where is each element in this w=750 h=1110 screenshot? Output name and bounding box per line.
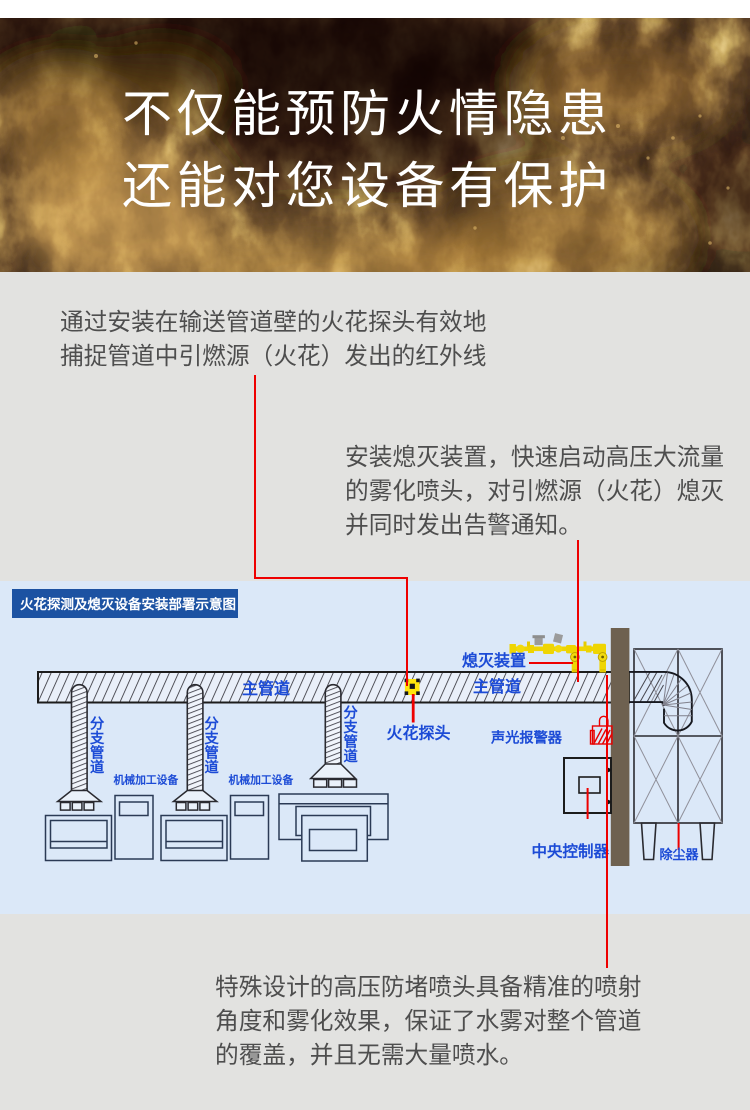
svg-text:支: 支: [343, 718, 359, 736]
svg-text:火花探测及熄灭设备安装部署示意图: 火花探测及熄灭设备安装部署示意图: [20, 596, 236, 612]
svg-text:分: 分: [344, 705, 359, 722]
svg-text:声光报警器: 声光报警器: [490, 730, 563, 747]
svg-text:管: 管: [344, 733, 358, 751]
svg-text:主管道: 主管道: [473, 677, 521, 696]
svg-text:支: 支: [204, 729, 220, 747]
svg-text:道: 道: [344, 747, 359, 765]
svg-text:火花探头: 火花探头: [387, 724, 451, 743]
svg-text:机械加工设备: 机械加工设备: [229, 773, 294, 787]
svg-text:分: 分: [205, 716, 220, 733]
svg-text:中央控制器: 中央控制器: [532, 842, 610, 861]
svg-text:管: 管: [90, 744, 104, 762]
svg-text:机械加工设备: 机械加工设备: [114, 773, 179, 787]
svg-text:道: 道: [205, 758, 220, 776]
svg-text:主管道: 主管道: [242, 679, 290, 698]
svg-text:支: 支: [89, 729, 105, 747]
svg-text:管: 管: [205, 744, 219, 762]
svg-text:道: 道: [90, 758, 105, 776]
svg-text:分: 分: [90, 716, 105, 733]
svg-text:除尘器: 除尘器: [660, 847, 700, 862]
svg-text:熄灭装置: 熄灭装置: [462, 651, 526, 670]
